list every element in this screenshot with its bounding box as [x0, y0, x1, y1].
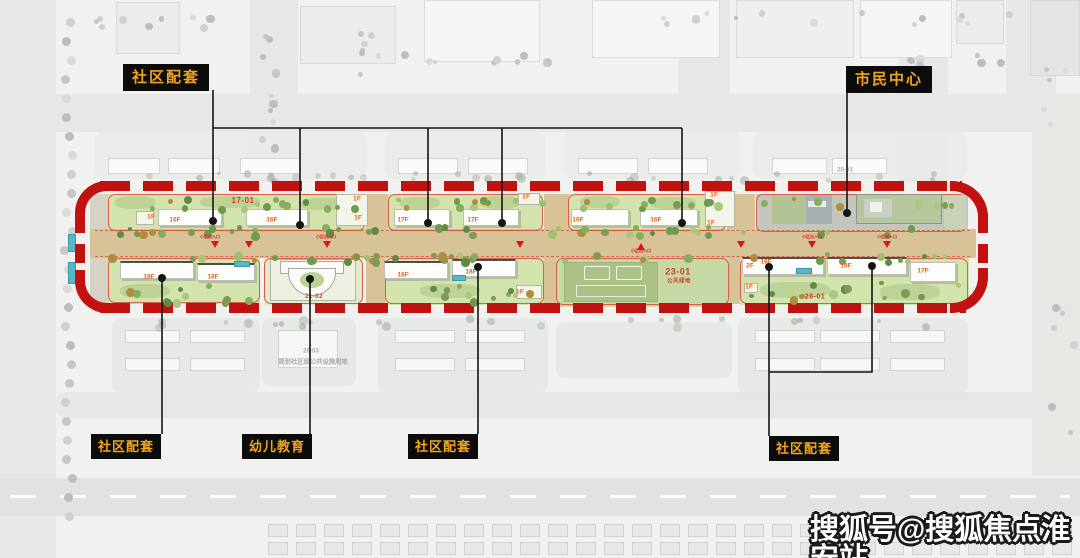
ghost-label: 规划社区级公共设施用地 [278, 359, 347, 365]
callout-community-bottom-2: 社区配套 [408, 434, 478, 459]
civic-building-1-roof-garden [772, 195, 806, 224]
tree [956, 283, 961, 288]
entrance-label: 小区出入口 [316, 235, 336, 239]
floor-label: 16F [650, 217, 661, 224]
watermark: 搜狐号@搜狐焦点淮安站 [810, 516, 1080, 558]
entrance-label: 小区出入口 [631, 249, 651, 253]
tree [949, 203, 954, 208]
callout-community-top: 社区配套 [123, 64, 209, 91]
site-boundary-corner [950, 268, 988, 313]
entrance-arrow [516, 241, 524, 248]
court-marking [616, 266, 642, 280]
court-marking [584, 266, 610, 280]
tree [471, 253, 478, 260]
tree [539, 200, 546, 207]
tree [584, 199, 590, 205]
tree [108, 254, 117, 263]
plot-label: 23-01 [665, 268, 691, 277]
tree [750, 254, 758, 262]
floor-label: 1F [745, 284, 753, 291]
plot-label: 公共绿地 [667, 279, 691, 285]
tree [222, 299, 229, 306]
pool [796, 268, 812, 274]
floor-label: 17F [397, 217, 408, 224]
tree [150, 206, 155, 211]
plot-label: 17-01 [232, 197, 255, 205]
tree [444, 287, 451, 294]
floor-label: 18F [465, 269, 476, 276]
floor-label: 1F [516, 289, 524, 296]
site-boundary-right [978, 214, 988, 270]
tree [934, 202, 942, 210]
tree [942, 202, 949, 209]
floor-label: 18F [840, 263, 851, 270]
tree [245, 297, 253, 305]
tree [279, 200, 287, 208]
callout-community-bottom-1: 社区配套 [91, 434, 161, 459]
tree [164, 299, 171, 306]
tree [139, 231, 147, 239]
floor-label: 18F [760, 259, 771, 266]
tree [690, 227, 696, 233]
pool [452, 275, 466, 281]
tree [469, 232, 477, 240]
tree [470, 298, 479, 307]
main-street [90, 229, 976, 258]
floor-label: 1F [522, 194, 530, 201]
tree [190, 256, 196, 262]
tree [491, 296, 496, 301]
tree [684, 254, 693, 263]
tree [188, 229, 195, 236]
tree [255, 202, 260, 207]
callout-civic-center: 市民中心 [846, 66, 932, 93]
street-edge-line [95, 230, 970, 231]
tree [581, 226, 589, 234]
master-plan-image: 1F16F16F1F1F17F17F1F16F16F1F1F18F18F18F1… [0, 0, 1080, 558]
tree [133, 290, 141, 298]
tree [461, 258, 470, 267]
floor-label: 18F [207, 274, 218, 281]
tree [601, 229, 608, 236]
floor-label: 1F [707, 220, 715, 227]
tree [633, 225, 638, 230]
ghost-label: 20-01 [837, 167, 853, 173]
residential-building-18f [120, 261, 194, 279]
site-boundary-bottom [100, 303, 966, 313]
tree [182, 293, 189, 300]
residential-building-16f [158, 209, 222, 226]
residential-building-16f [640, 209, 698, 226]
floor-label: 1F [147, 214, 155, 221]
tree [918, 294, 925, 301]
tree [392, 255, 399, 262]
tree [366, 229, 372, 235]
site-boundary-corner [950, 181, 988, 221]
tree [915, 200, 923, 208]
tree [898, 258, 903, 263]
entrance-arrow [883, 241, 891, 248]
tree [430, 286, 437, 293]
site-boundary-top [100, 181, 962, 191]
residential-building-18f [384, 261, 448, 279]
court-marking [576, 285, 646, 297]
floor-label: 1F [710, 192, 718, 199]
entrance-arrow [808, 241, 816, 248]
floor-label: 16F [169, 217, 180, 224]
entrance-label: 小区出入口 [200, 235, 220, 239]
tree [251, 232, 260, 241]
floor-label: 17F [467, 217, 478, 224]
tree [457, 284, 462, 289]
tree [562, 259, 568, 265]
tree [882, 296, 887, 301]
kindergarten-courtyard [300, 272, 324, 288]
tree [463, 226, 470, 233]
tree [877, 253, 885, 261]
tree [178, 287, 184, 293]
tree [548, 230, 557, 239]
site-boundary-left [75, 214, 85, 272]
tree [303, 199, 310, 206]
entrance-label: 小区出入口 [802, 235, 822, 239]
tree [741, 230, 746, 235]
tree [901, 289, 910, 298]
tree [396, 198, 401, 203]
entrance-label: 小区出入口 [877, 235, 897, 239]
tree [351, 205, 359, 213]
floor-label: 1F [353, 196, 361, 203]
ghost-label: 26-03 [303, 348, 319, 354]
callout-kindergarten: 幼儿教育 [242, 434, 312, 459]
tree [714, 202, 723, 211]
floor-label: 18F [143, 274, 154, 281]
tree [829, 290, 838, 299]
tree [234, 252, 243, 261]
floor-label: 16F [266, 217, 277, 224]
tree [173, 299, 181, 307]
plot-label: 26-01 [805, 294, 825, 301]
tree [513, 198, 519, 204]
entrance-arrow [737, 241, 745, 248]
callout-community-bottom-3: 社区配套 [769, 436, 839, 461]
tree [905, 259, 911, 265]
tree [526, 290, 534, 298]
tree [705, 232, 712, 239]
tree [879, 281, 884, 286]
entrance-arrow [211, 241, 219, 248]
floor-label: 17F [917, 268, 928, 275]
tree [438, 252, 447, 261]
tree [324, 205, 332, 213]
plot-label: 21-02 [305, 294, 323, 300]
tree [344, 258, 352, 266]
tree [230, 229, 235, 234]
tree [273, 197, 279, 203]
tree [182, 205, 189, 212]
tree [580, 205, 587, 212]
floor-label: 16F [572, 217, 583, 224]
tree [371, 227, 379, 235]
site-boundary-corner [75, 181, 107, 219]
tree [641, 201, 648, 208]
tree [449, 254, 454, 259]
tree [761, 200, 768, 207]
tree [263, 203, 271, 211]
tree [206, 283, 212, 289]
entrance-arrow [323, 241, 331, 248]
tree [168, 199, 173, 204]
tree [472, 199, 478, 205]
floor-label: 2F [746, 263, 754, 270]
tree [556, 226, 561, 231]
floor-label: 18F [397, 272, 408, 279]
tree [799, 294, 805, 300]
floor-label: 1F [354, 215, 362, 222]
civic-building-2-detail [870, 202, 882, 212]
tree [252, 258, 257, 263]
tree [814, 198, 822, 206]
tree [431, 253, 437, 259]
pool [234, 261, 250, 267]
tree [442, 224, 448, 230]
tree [441, 293, 449, 301]
site-boundary-corner [75, 270, 107, 313]
entrance-arrow [245, 241, 253, 248]
